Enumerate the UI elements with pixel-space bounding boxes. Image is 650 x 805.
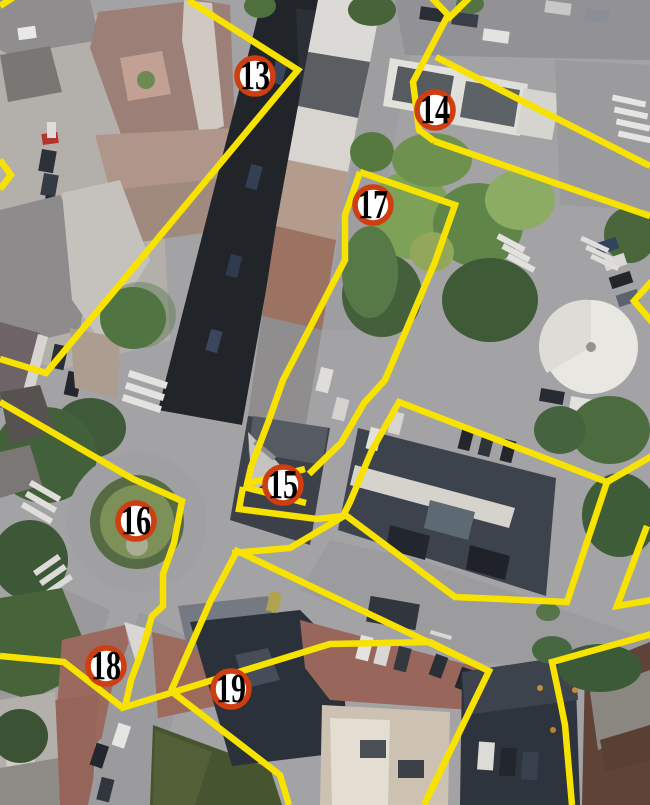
svg-text:15: 15 (268, 461, 298, 507)
svg-text:14: 14 (420, 86, 450, 132)
svg-text:13: 13 (240, 52, 270, 98)
svg-text:16: 16 (121, 497, 151, 543)
svg-text:17: 17 (358, 181, 388, 227)
svg-text:18: 18 (91, 642, 121, 688)
svg-text:19: 19 (216, 665, 246, 711)
